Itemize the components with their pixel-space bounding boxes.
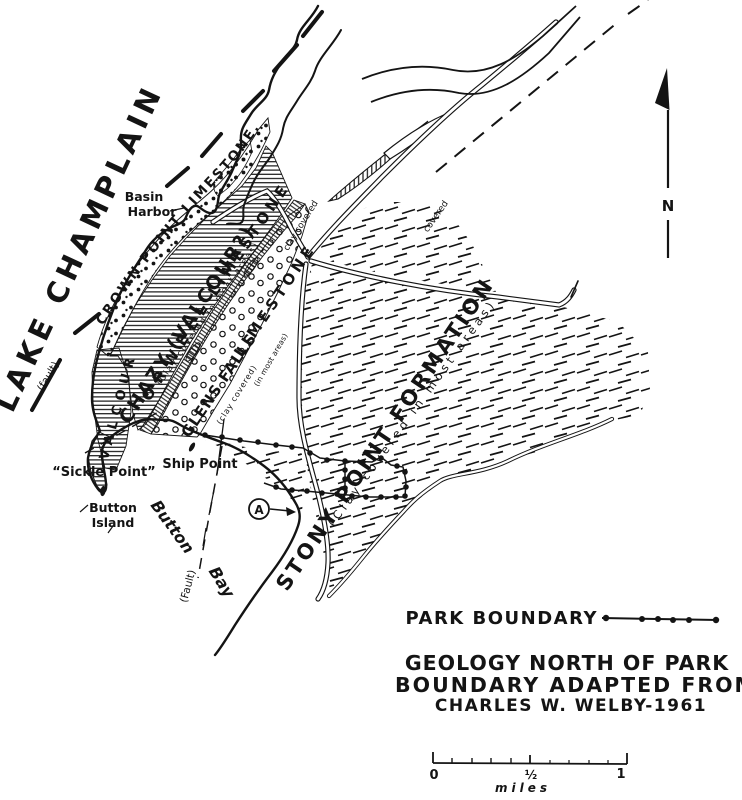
marker-a-group: A bbox=[249, 499, 296, 519]
scale-bar: 0 ½ 1 miles bbox=[429, 752, 627, 795]
title-line-3: CHARLES W. WELBY-1961 bbox=[435, 696, 707, 716]
geologic-map-page: A N LAKE CHAMPLAIN CROWN POINT LIMESTONE… bbox=[0, 0, 742, 800]
title-line-1: GEOLOGY NORTH OF PARK bbox=[405, 651, 729, 675]
bay-fault-label: (Fault) bbox=[178, 569, 198, 604]
button-island-label-2: Island bbox=[92, 515, 135, 530]
geologic-map-svg: A N LAKE CHAMPLAIN CROWN POINT LIMESTONE… bbox=[0, 0, 742, 800]
creek-ne-line-1 bbox=[362, 6, 576, 79]
scale-one-label: 1 bbox=[616, 767, 625, 782]
scale-half-label: ½ bbox=[525, 768, 537, 782]
ship-point-strike-dashes bbox=[203, 490, 214, 546]
marker-a-arrowhead bbox=[286, 507, 296, 516]
legend-park-boundary: PARK BOUNDARY bbox=[405, 608, 719, 629]
north-label: N bbox=[662, 197, 675, 215]
park-boundary-legend-label: PARK BOUNDARY bbox=[405, 608, 598, 629]
sickle-point-label: “Sickle Point” bbox=[52, 465, 155, 480]
marker-a-letter: A bbox=[254, 503, 264, 517]
ship-point-islet bbox=[188, 442, 197, 453]
button-bay-label-1: Button bbox=[147, 496, 198, 557]
button-island-label-1: Button bbox=[89, 500, 137, 515]
scale-unit-label: miles bbox=[495, 781, 551, 795]
basin-harbor-label-2: Harbor bbox=[128, 204, 178, 219]
button-bay-label-2: Bay bbox=[205, 563, 239, 601]
basin-harbor-label-1: Basin bbox=[125, 189, 164, 204]
title-block: GEOLOGY NORTH OF PARK BOUNDARY ADAPTED F… bbox=[395, 651, 742, 716]
north-arrow-head bbox=[655, 68, 670, 110]
ship-point-label: Ship Point bbox=[162, 457, 237, 472]
northeast-dashed-line bbox=[436, 0, 648, 172]
title-line-2: BOUNDARY ADAPTED FROM bbox=[395, 673, 742, 697]
north-arrow: N bbox=[655, 68, 674, 258]
creek-northeast bbox=[362, 6, 580, 102]
scale-zero-label: 0 bbox=[429, 768, 438, 783]
